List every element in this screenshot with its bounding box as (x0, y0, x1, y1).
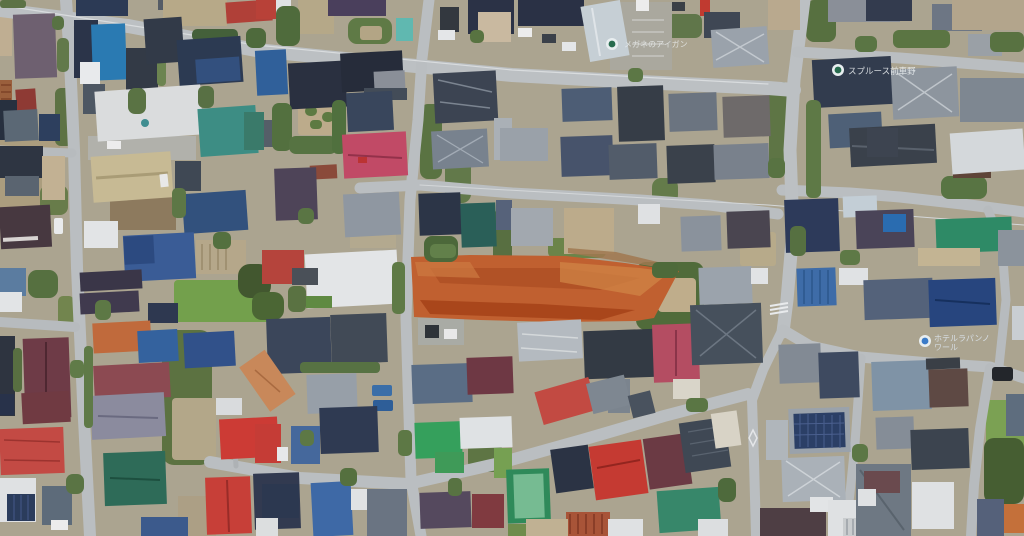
svg-text:ホテルラパンノ: ホテルラパンノ (934, 334, 990, 343)
svg-text:メガネのアイガン: メガネのアイガン (624, 39, 688, 49)
svg-text:ワール: ワール (934, 343, 958, 352)
svg-text:スプルース前車野: スプルース前車野 (848, 66, 916, 76)
